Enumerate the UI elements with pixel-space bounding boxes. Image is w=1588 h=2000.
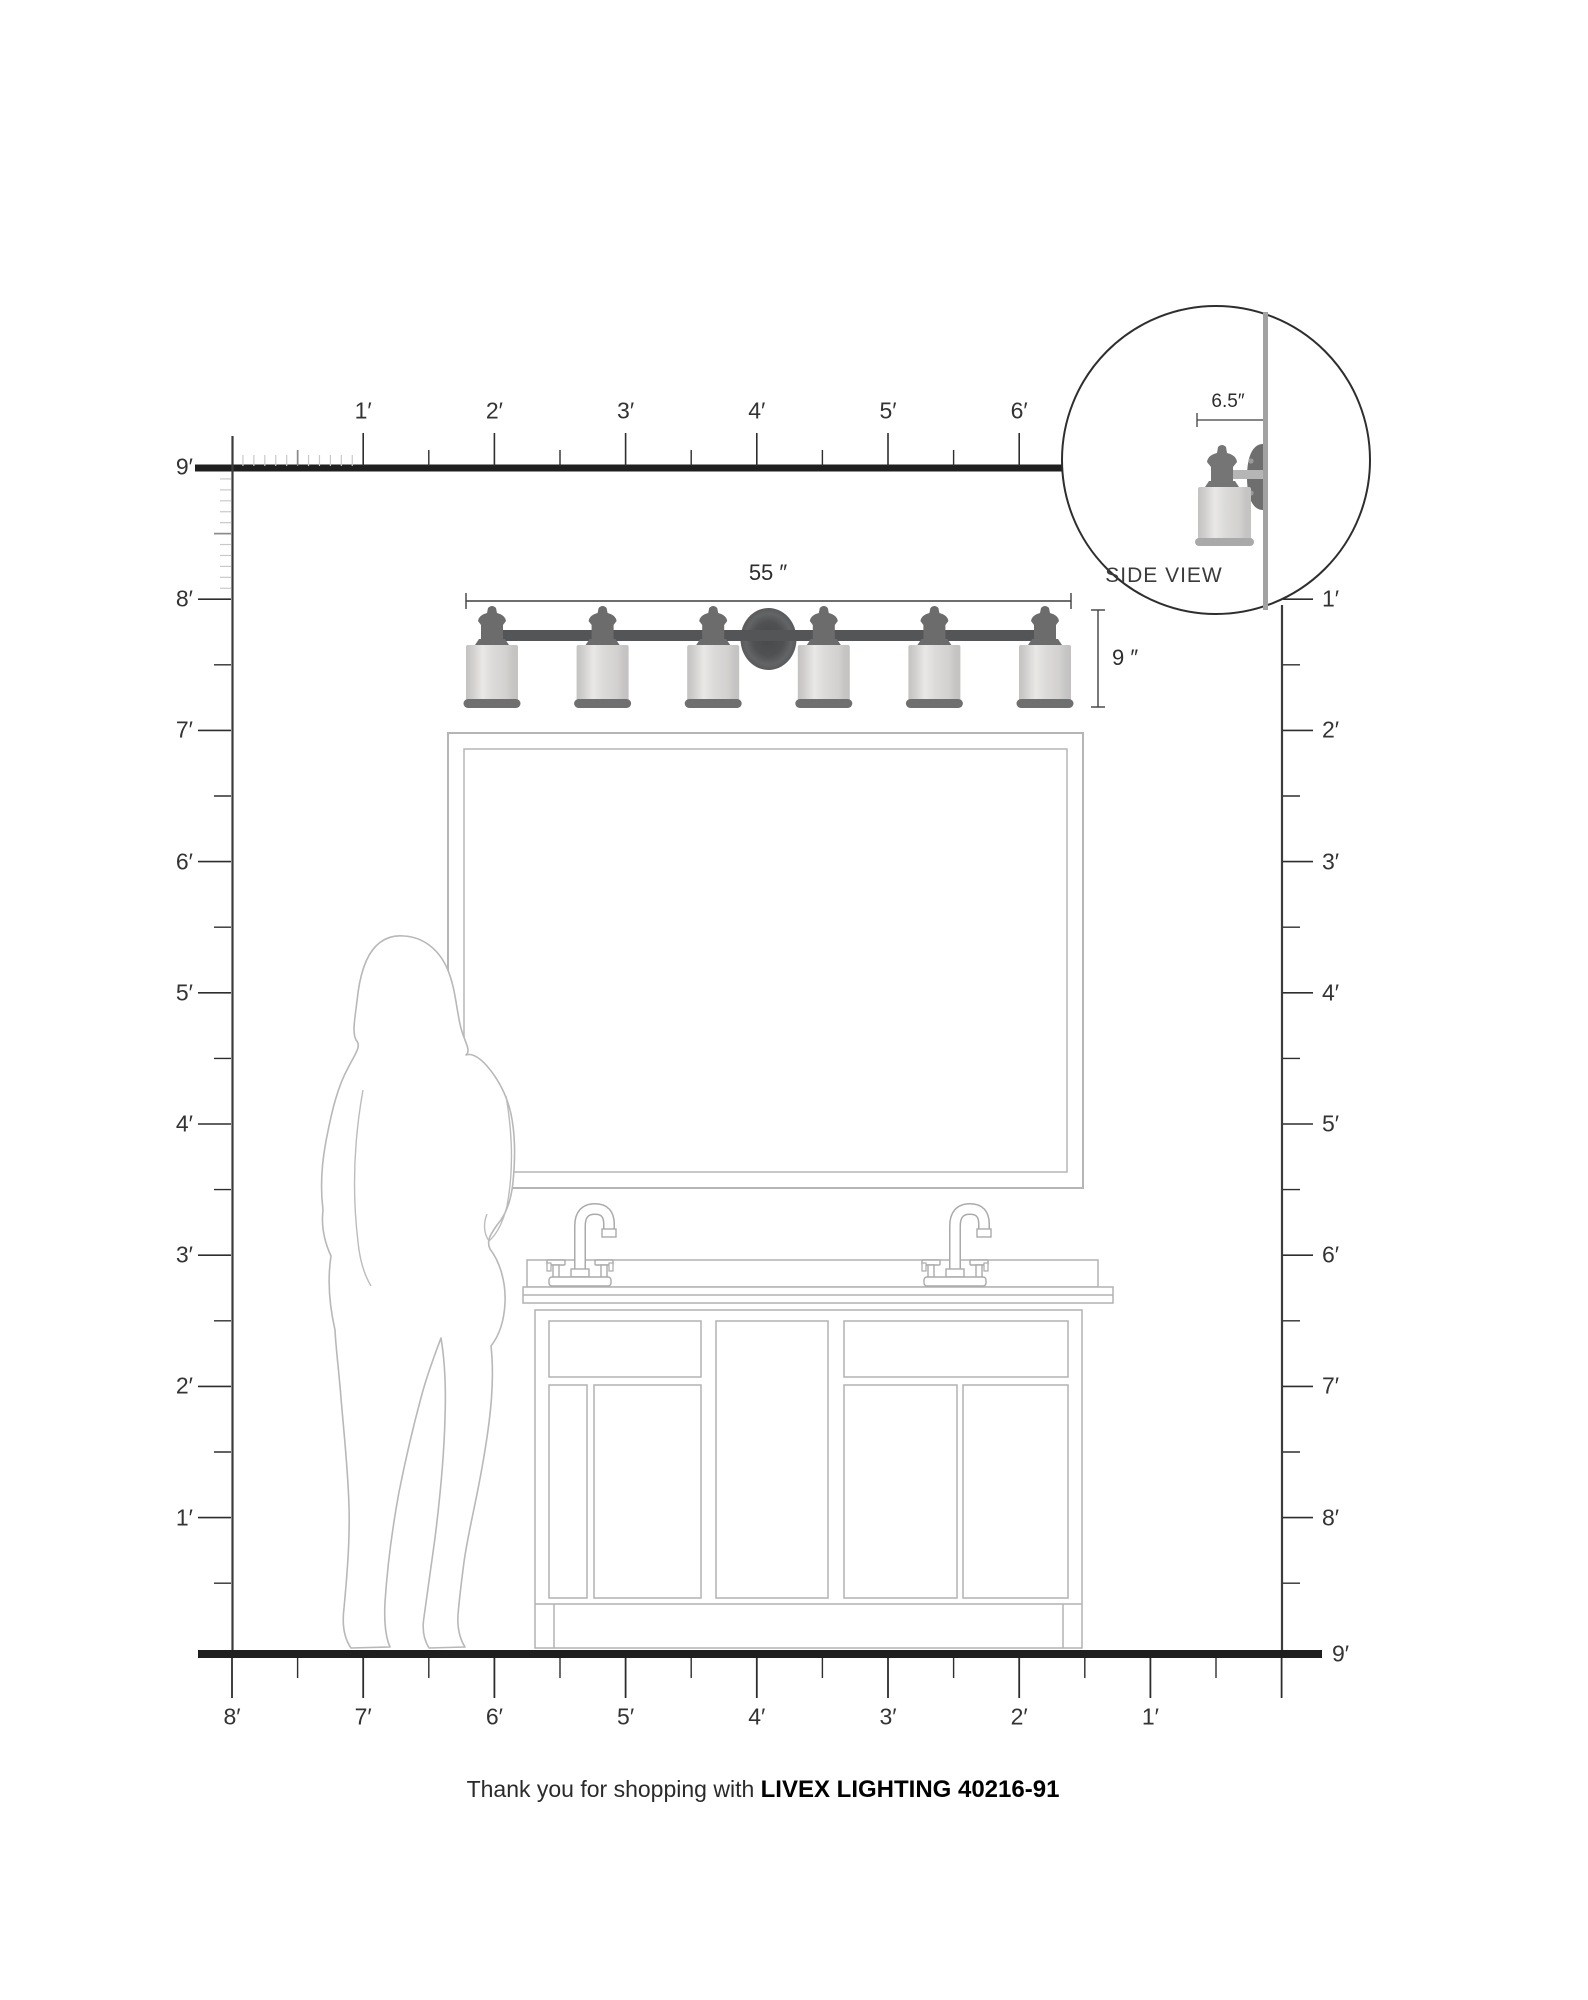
- footer-text: Thank you for shopping with LIVEX LIGHTI…: [467, 1776, 1060, 1804]
- top-ruler-label: 1′: [355, 398, 372, 425]
- left-ruler-label: 4′: [176, 1111, 193, 1138]
- bottom-ruler-label: 3′: [879, 1704, 896, 1731]
- top-ruler-label: 2′: [486, 398, 503, 425]
- right-ruler-nine-label: 9′: [1332, 1641, 1349, 1668]
- fixture-height-label: 9 ″: [1112, 645, 1138, 671]
- right-ruler-label: 5′: [1322, 1111, 1339, 1138]
- right-ruler-label: 7′: [1322, 1373, 1339, 1400]
- left-ruler-nine-label: 9′: [176, 454, 193, 481]
- bottom-ruler-label: 6′: [486, 1704, 503, 1731]
- right-ruler-label: 8′: [1322, 1504, 1339, 1531]
- top-ruler-label: 4′: [748, 398, 765, 425]
- bottom-ruler-label: 5′: [617, 1704, 634, 1731]
- right-ruler-label: 1′: [1322, 586, 1339, 613]
- bottom-ruler-label: 1′: [1142, 1704, 1159, 1731]
- right-ruler-label: 2′: [1322, 717, 1339, 744]
- left-ruler-label: 7′: [176, 717, 193, 744]
- left-ruler-label: 1′: [176, 1504, 193, 1531]
- fixture-width-label: 55 ″: [749, 560, 787, 586]
- top-ruler-label: 6′: [1011, 398, 1028, 425]
- footer-brand: LIVEX LIGHTING 40216-91: [761, 1776, 1060, 1803]
- scale-diagram: 9′ 9′ 55 ″ 9 ″ 6.5″ SIDE VIEW Thank you …: [0, 0, 1588, 2000]
- left-ruler-label: 6′: [176, 848, 193, 875]
- bottom-ruler-label: 7′: [355, 1704, 372, 1731]
- left-ruler-label: 2′: [176, 1373, 193, 1400]
- bottom-ruler-label: 8′: [223, 1704, 240, 1731]
- side-view-title: SIDE VIEW: [1105, 564, 1223, 588]
- label-layer: 9′ 9′ 55 ″ 9 ″ 6.5″ SIDE VIEW Thank you …: [0, 0, 1588, 2000]
- left-ruler-label: 5′: [176, 979, 193, 1006]
- right-ruler-label: 6′: [1322, 1242, 1339, 1269]
- footer-prefix: Thank you for shopping with: [467, 1776, 761, 1802]
- top-ruler-label: 3′: [617, 398, 634, 425]
- bottom-ruler-label: 4′: [748, 1704, 765, 1731]
- bottom-ruler-label: 2′: [1011, 1704, 1028, 1731]
- right-ruler-label: 4′: [1322, 979, 1339, 1006]
- right-ruler-label: 3′: [1322, 848, 1339, 875]
- top-ruler-label: 5′: [879, 398, 896, 425]
- left-ruler-label: 3′: [176, 1242, 193, 1269]
- left-ruler-label: 8′: [176, 586, 193, 613]
- fixture-depth-label: 6.5″: [1211, 391, 1244, 413]
